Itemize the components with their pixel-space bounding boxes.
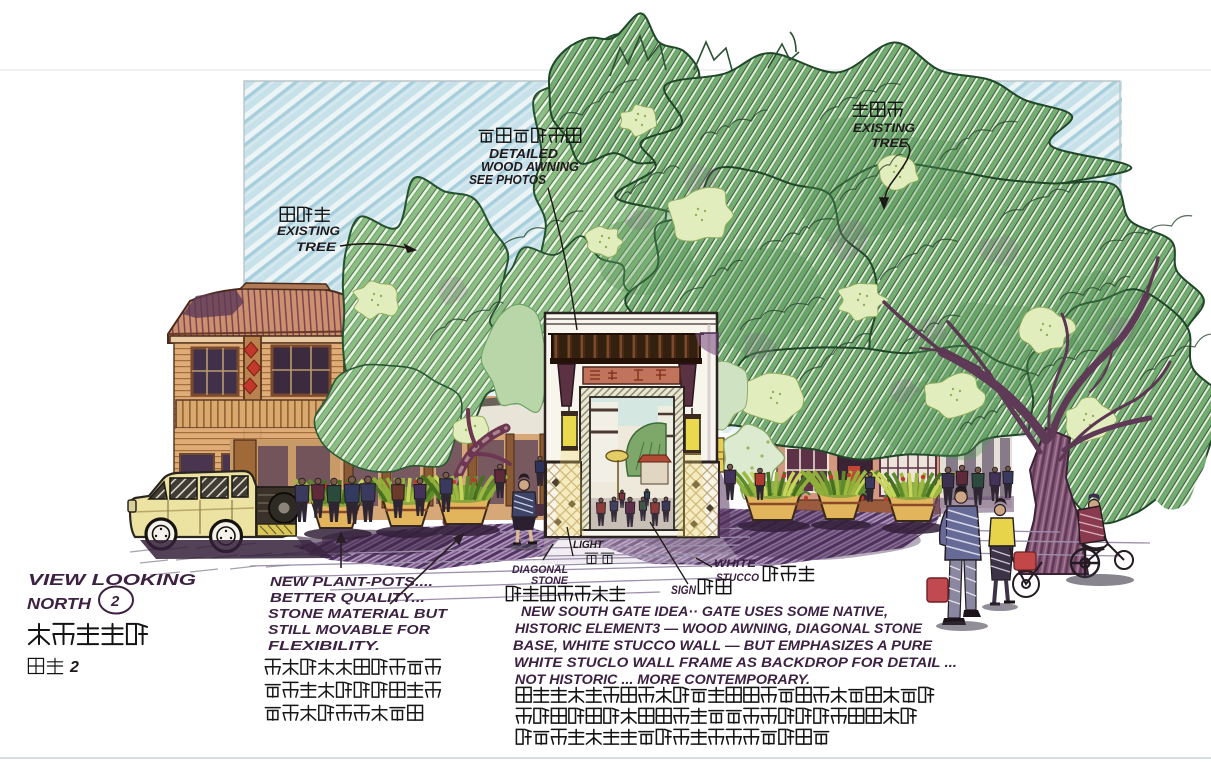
svg-text:STONE MATERIAL BUT: STONE MATERIAL BUT — [268, 606, 448, 621]
svg-text:STONE: STONE — [531, 575, 569, 587]
svg-text:TREE: TREE — [296, 240, 337, 254]
svg-text:SIGN: SIGN — [671, 583, 696, 597]
svg-text:FLEXIBILITY.: FLEXIBILITY. — [268, 638, 380, 653]
svg-text:HISTORIC ELEMENT3 — WOOD AWNIN: HISTORIC ELEMENT3 — WOOD AWNING, DIAGONA… — [515, 621, 923, 636]
svg-text:EXISTING: EXISTING — [853, 121, 915, 135]
svg-text:LIGHT: LIGHT — [573, 539, 604, 551]
svg-text:2: 2 — [110, 593, 120, 610]
svg-text:DETAILED: DETAILED — [489, 147, 558, 161]
svg-text:BASE, WHITE STUCCO WALL — BUT: BASE, WHITE STUCCO WALL — BUT EMPHASIZES… — [513, 638, 933, 653]
svg-text:2: 2 — [69, 659, 79, 676]
svg-text:WHITE: WHITE — [714, 558, 757, 570]
svg-text:EXISTING: EXISTING — [277, 224, 340, 238]
svg-text:SEE PHOTOS: SEE PHOTOS — [469, 173, 547, 187]
svg-text:STUCCO: STUCCO — [716, 572, 759, 584]
svg-text:STILL MOVABLE FOR: STILL MOVABLE FOR — [268, 622, 431, 637]
svg-text:NORTH: NORTH — [27, 596, 92, 613]
svg-text:WOOD AWNING: WOOD AWNING — [481, 160, 579, 174]
svg-text:NEW SOUTH GATE IDEA·· GATE USE: NEW SOUTH GATE IDEA·· GATE USES SOME NAT… — [521, 604, 888, 619]
svg-text:NEW PLANT-POTS....: NEW PLANT-POTS.... — [270, 574, 433, 589]
svg-text:TREE: TREE — [871, 136, 909, 150]
svg-text:WHITE STUCLO WALL FRAME AS BAC: WHITE STUCLO WALL FRAME AS BACKDROP FOR … — [514, 655, 957, 670]
svg-text:NOT HISTORIC ... MORE CONTEMPO: NOT HISTORIC ... MORE CONTEMPORARY. — [515, 672, 810, 687]
svg-text:BETTER QUALITY...: BETTER QUALITY... — [270, 590, 425, 605]
